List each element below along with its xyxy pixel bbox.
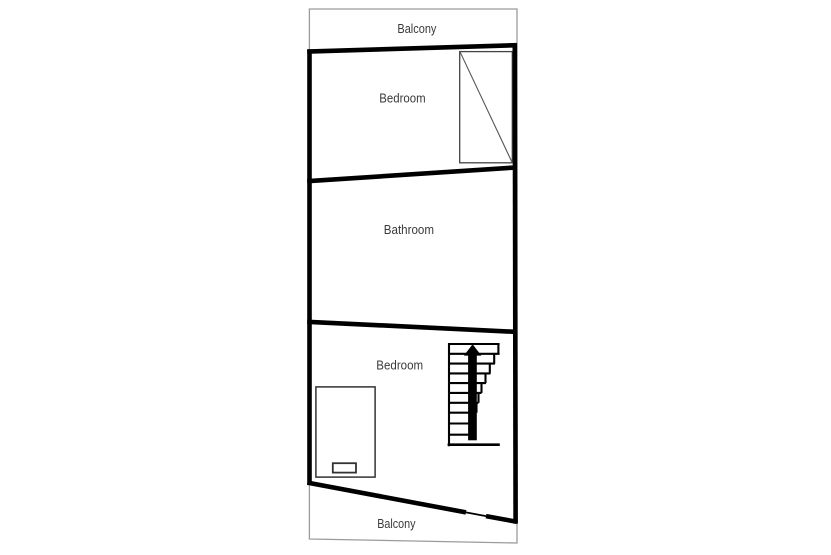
svg-text:Balcony: Balcony xyxy=(377,516,416,531)
svg-text:Balcony: Balcony xyxy=(397,21,436,36)
svg-text:Bedroom: Bedroom xyxy=(376,358,423,373)
svg-text:Bathroom: Bathroom xyxy=(384,222,434,237)
svg-text:Bedroom: Bedroom xyxy=(379,90,425,105)
